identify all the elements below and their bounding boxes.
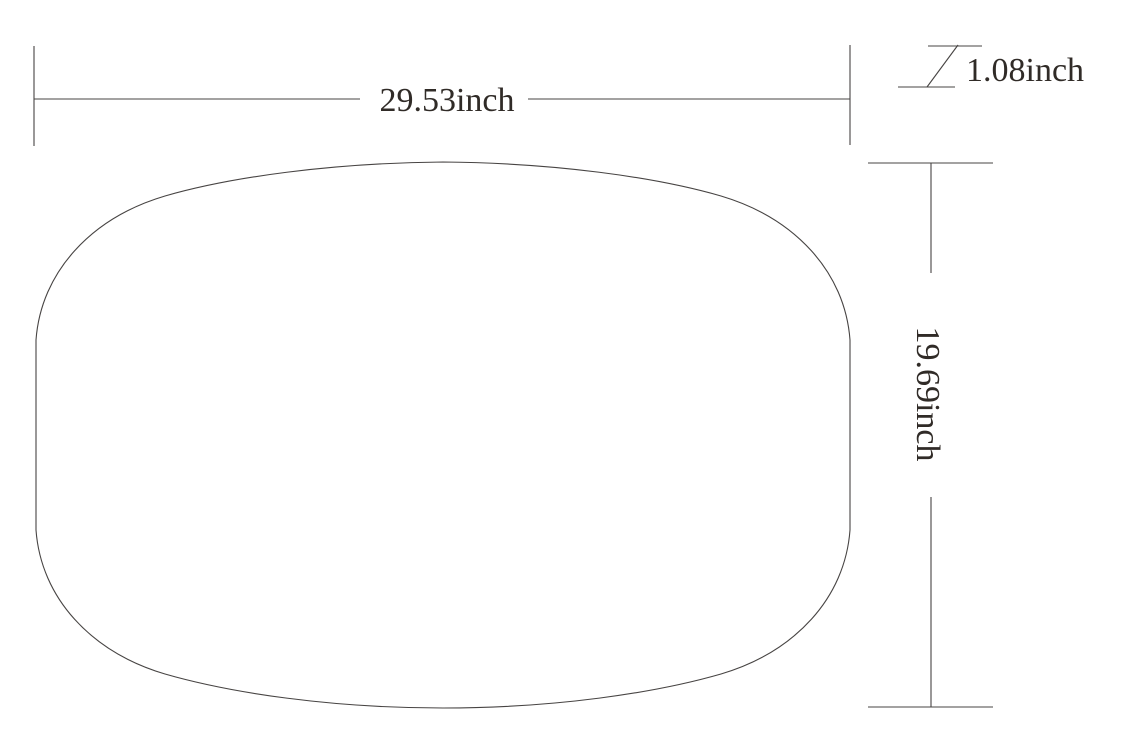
height-dimension-label: 19.69inch <box>908 326 946 461</box>
dimension-drawing: 29.53inch 1.08inch 19.69inch <box>0 0 1126 730</box>
width-dimension-label: 29.53inch <box>357 81 537 121</box>
thickness-dimension-label: 1.08inch <box>966 52 1084 90</box>
panel-outline <box>36 162 850 708</box>
thickness-symbol-diagonal <box>927 45 958 87</box>
drawing-layer <box>0 0 1126 730</box>
panel-outline-path <box>36 162 850 708</box>
